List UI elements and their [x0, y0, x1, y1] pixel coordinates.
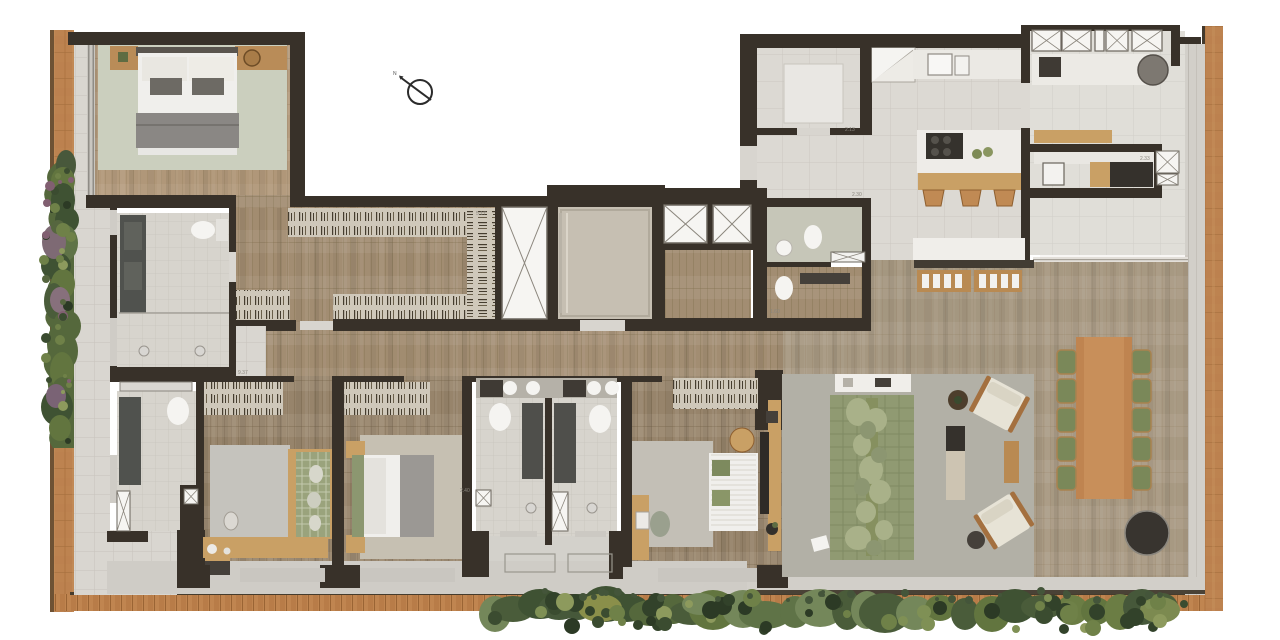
svg-text:2.40: 2.40 — [460, 488, 470, 494]
svg-text:5.17: 5.17 — [476, 211, 486, 217]
svg-text:2.13: 2.13 — [845, 127, 855, 133]
svg-text:2.30: 2.30 — [852, 192, 862, 198]
svg-text:1.60: 1.60 — [770, 309, 780, 315]
svg-text:9.37: 9.37 — [238, 370, 248, 376]
svg-text:N: N — [393, 71, 397, 77]
svg-text:2.33: 2.33 — [1140, 156, 1150, 162]
